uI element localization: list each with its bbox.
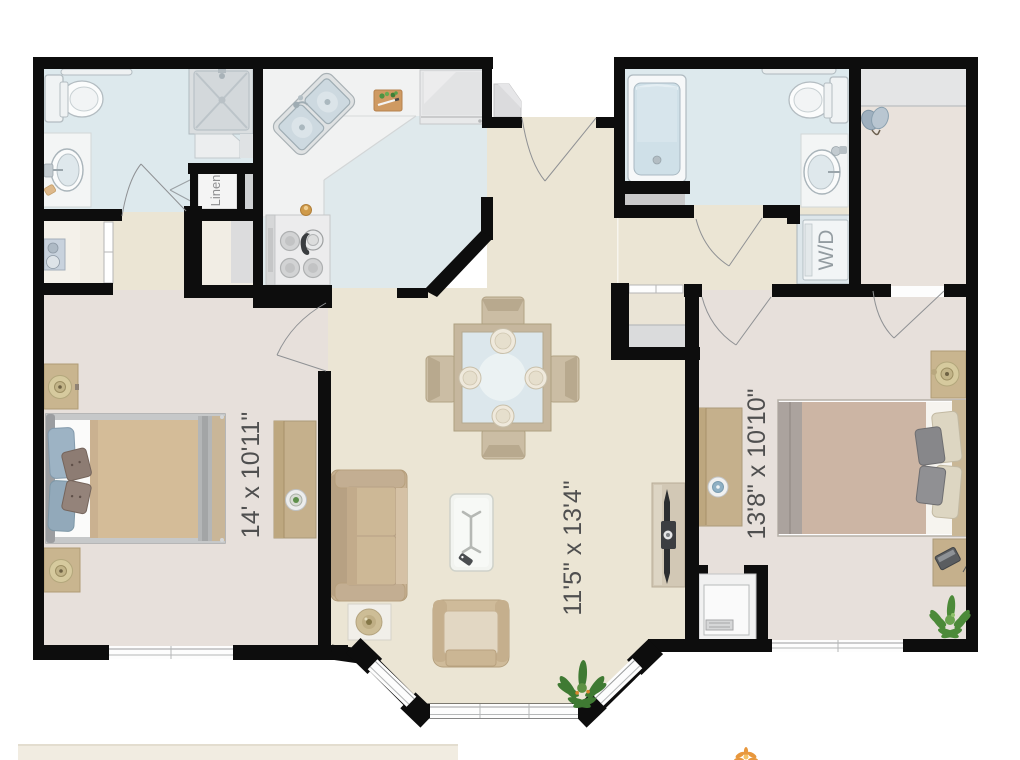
svg-text:14' x 10'11": 14' x 10'11": [237, 412, 265, 538]
svg-text:11'5" x 13'4": 11'5" x 13'4": [559, 480, 587, 615]
svg-text:Linen: Linen: [208, 175, 223, 207]
svg-text:13'8" x 10'10": 13'8" x 10'10": [743, 388, 771, 539]
svg-text:W/D: W/D: [815, 230, 838, 271]
